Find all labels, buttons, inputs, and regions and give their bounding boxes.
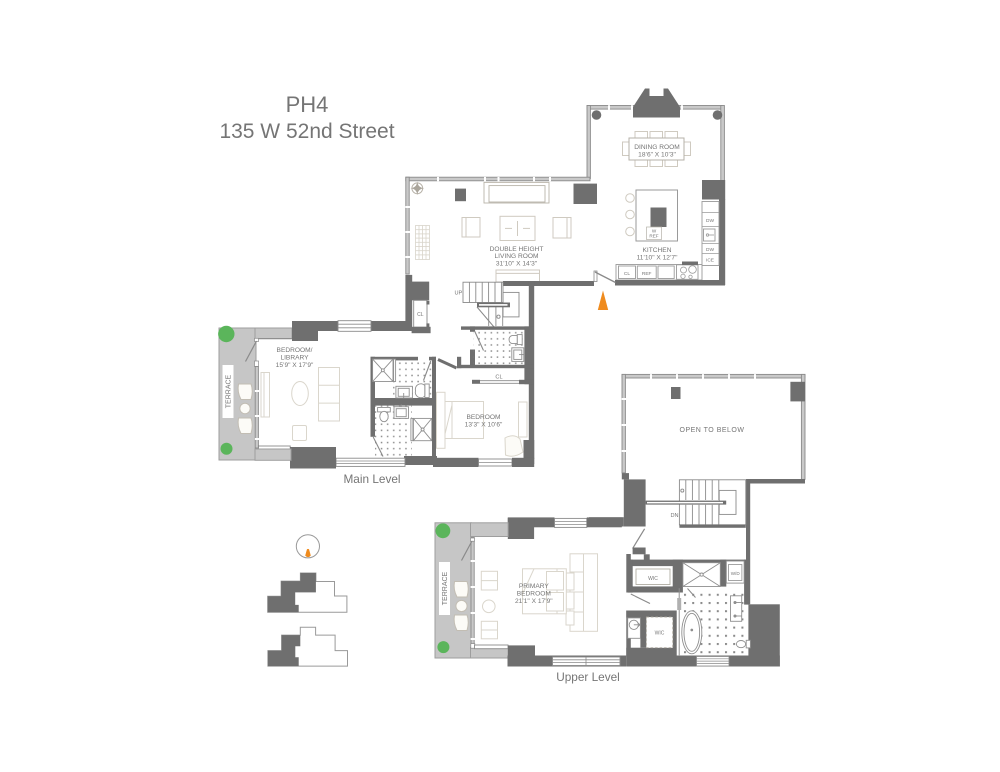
svg-text:ICE: ICE [706,258,714,264]
svg-text:BEDROOM/: BEDROOM/ [277,347,313,354]
svg-text:BEDROOM: BEDROOM [466,414,500,421]
svg-text:Upper Level: Upper Level [556,670,620,684]
svg-text:15’9" X 17’9": 15’9" X 17’9" [276,362,314,369]
svg-text:Main Level: Main Level [343,472,400,486]
svg-text:TERRACE: TERRACE [442,571,449,605]
svg-text:LIVING ROOM: LIVING ROOM [495,253,539,260]
svg-text:REF: REF [642,271,652,277]
svg-text:OPEN TO BELOW: OPEN TO BELOW [680,427,745,434]
svg-text:18’6" X 10’3": 18’6" X 10’3" [638,152,676,159]
svg-text:CL: CL [624,271,630,277]
svg-text:DW: DW [706,218,714,224]
svg-text:DINING ROOM: DINING ROOM [634,144,679,151]
svg-text:PRIMARY: PRIMARY [519,583,550,590]
svg-text:CL: CL [417,312,424,318]
svg-text:PH4: PH4 [286,92,329,117]
svg-text:DN: DN [671,513,679,519]
svg-text:135 W 52nd Street: 135 W 52nd Street [219,120,394,143]
svg-text:UP: UP [455,291,463,297]
svg-text:DOUBLE HEIGHT: DOUBLE HEIGHT [490,246,544,253]
svg-text:CL: CL [495,375,502,381]
svg-text:REF: REF [649,234,658,239]
svg-text:WIC: WIC [648,576,658,582]
svg-text:31’10" X 14’3": 31’10" X 14’3" [496,260,538,267]
svg-text:DW: DW [706,247,714,253]
svg-text:BEDROOM: BEDROOM [517,590,551,597]
svg-text:21’1" X 17’9": 21’1" X 17’9" [515,598,553,605]
svg-text:LIBRARY: LIBRARY [280,354,309,361]
svg-text:TERRACE: TERRACE [226,374,233,408]
svg-text:13’3" X 10’6": 13’3" X 10’6" [465,421,503,428]
svg-text:WIC: WIC [655,631,665,637]
svg-text:11’10" X 12’7": 11’10" X 12’7" [637,254,679,261]
svg-text:KITCHEN: KITCHEN [643,247,672,254]
svg-text:W/D: W/D [731,571,741,576]
